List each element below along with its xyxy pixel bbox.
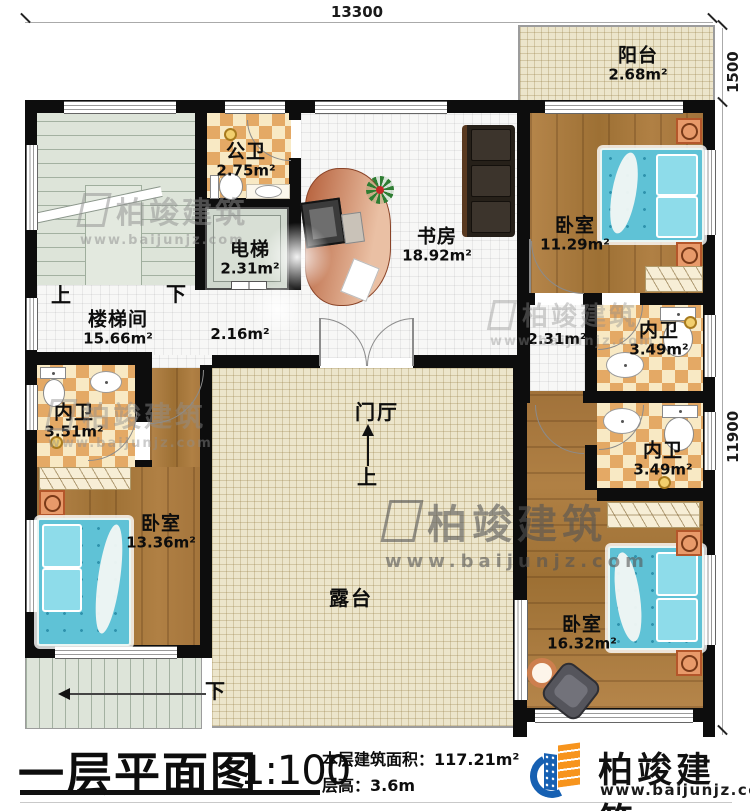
wardrobe — [607, 502, 700, 528]
wall — [583, 391, 715, 403]
window — [315, 101, 447, 114]
ext-stairs-arrow — [70, 693, 206, 695]
wall — [289, 100, 301, 120]
window — [514, 600, 528, 700]
wall — [200, 365, 212, 658]
brand-website: www.baijunjz.com — [600, 781, 750, 799]
window — [225, 101, 285, 114]
wall — [585, 305, 597, 391]
sofa-cushion — [471, 129, 511, 161]
pillow — [656, 196, 698, 238]
plant-center — [376, 186, 384, 194]
room-label-bedroom-left: 卧室 13.36m² — [126, 514, 196, 551]
nightstand-lamp-icon — [681, 123, 698, 140]
window — [26, 145, 38, 230]
entry-door-leaf — [319, 318, 321, 366]
wardrobe — [39, 467, 131, 490]
wall — [583, 293, 602, 305]
room-label-bath-left: 内卫 3.51m² — [44, 403, 103, 440]
flush-button — [52, 372, 55, 375]
wall — [413, 355, 513, 368]
floor-height-text: 层高：3.6m — [322, 772, 415, 796]
wall — [289, 158, 301, 207]
flush-button — [679, 410, 682, 413]
wall — [585, 445, 597, 490]
floor-plan: 阳台 2.68m² 公卫 2.75m² 电梯 2.31m² 书房 18.92m²… — [0, 0, 750, 811]
logo-building-blue — [544, 753, 557, 791]
wall — [205, 198, 293, 207]
ext-stairs-down-label: 下 — [205, 681, 227, 703]
brand-name: 柏竣建筑 — [598, 742, 750, 811]
room-label-study: 书房 18.92m² — [402, 227, 472, 264]
wall — [597, 488, 715, 501]
wall — [25, 352, 152, 365]
nightstand-lamp-icon — [681, 655, 698, 672]
pillow — [656, 154, 698, 196]
window — [26, 385, 38, 430]
armchair-seat — [552, 672, 590, 710]
wall — [212, 355, 320, 368]
dimension-line-top — [25, 22, 713, 23]
stairs-down-label: 下 — [166, 284, 188, 306]
floor-area-text: 本层建筑面积：117.21m² — [322, 746, 519, 770]
dimension-width: 13300 — [317, 3, 397, 21]
room-label-public-bath: 公卫 2.75m² — [216, 142, 275, 179]
sink — [255, 185, 282, 198]
title-underline — [20, 790, 320, 795]
sink — [90, 371, 122, 393]
flush-button — [677, 313, 680, 316]
keyboard — [341, 212, 365, 244]
room-label-elevator: 电梯 2.31m² — [220, 240, 279, 277]
nightstand-lamp-icon — [681, 247, 698, 264]
drain — [105, 381, 108, 384]
ext-stairs-arrowhead — [58, 688, 70, 700]
wall — [640, 293, 715, 305]
foyer-up-arrowhead — [362, 424, 374, 436]
nightstand — [676, 118, 702, 144]
window — [704, 555, 716, 645]
balcony-door-window — [545, 101, 683, 114]
pillow — [42, 524, 82, 568]
nightstand-lamp-icon — [681, 535, 698, 552]
foyer-up-label: 上 — [357, 467, 379, 489]
logo-building-orange — [558, 742, 580, 787]
foyer-up-arrow — [367, 434, 369, 466]
plant — [366, 176, 394, 204]
window — [55, 646, 177, 659]
sofa-cushion — [471, 165, 511, 197]
room-label-balcony: 阳台 2.68m² — [608, 46, 667, 83]
pillow — [656, 552, 698, 596]
room-label-terrace: 露台 — [329, 588, 373, 610]
wall — [527, 293, 535, 305]
dimension-balcony-depth: 1500 — [724, 38, 742, 93]
area-label-hall-left: 2.16m² — [210, 326, 269, 342]
window — [26, 298, 38, 350]
area-label-hall-right: 2.31m² — [527, 331, 586, 347]
room-label-bedroom-br: 卧室 16.32m² — [547, 615, 617, 652]
window — [704, 315, 716, 377]
room-label-bath-tr: 内卫 3.49m² — [629, 321, 688, 358]
door-leaf — [529, 239, 531, 293]
sofa — [462, 125, 515, 237]
floor-area-value: 117.21m² — [434, 750, 519, 769]
wall — [135, 460, 152, 467]
nightstand — [39, 490, 65, 516]
nightstand-lamp-icon — [44, 495, 61, 512]
nightstand — [676, 530, 702, 556]
dimension-line-right — [722, 28, 723, 735]
nightstand — [676, 650, 702, 676]
room-label-bedroom-tr: 卧室 11.29m² — [540, 216, 610, 253]
wardrobe — [645, 266, 703, 292]
brand-logo — [530, 742, 592, 802]
room-label-stairwell: 楼梯间 15.66m² — [83, 310, 153, 347]
drain — [624, 364, 627, 367]
stairs-up-label: 上 — [51, 285, 73, 307]
pillow — [656, 598, 698, 642]
nightstand — [676, 242, 702, 268]
ceiling-lamp-icon — [224, 128, 237, 141]
window — [64, 101, 176, 114]
entry-door-leaf — [412, 318, 414, 366]
dimension-height: 11900 — [724, 378, 742, 463]
floor-area-label: 本层建筑面积： — [322, 750, 434, 769]
hall-right-floor — [530, 305, 585, 391]
window — [704, 412, 716, 470]
sofa-cushion — [471, 201, 511, 233]
toilet-tank — [40, 367, 66, 379]
window — [704, 150, 716, 235]
room-label-foyer: 门厅 — [355, 402, 399, 424]
room-label-bath-br: 内卫 3.49m² — [633, 441, 692, 478]
pillow — [42, 568, 82, 612]
